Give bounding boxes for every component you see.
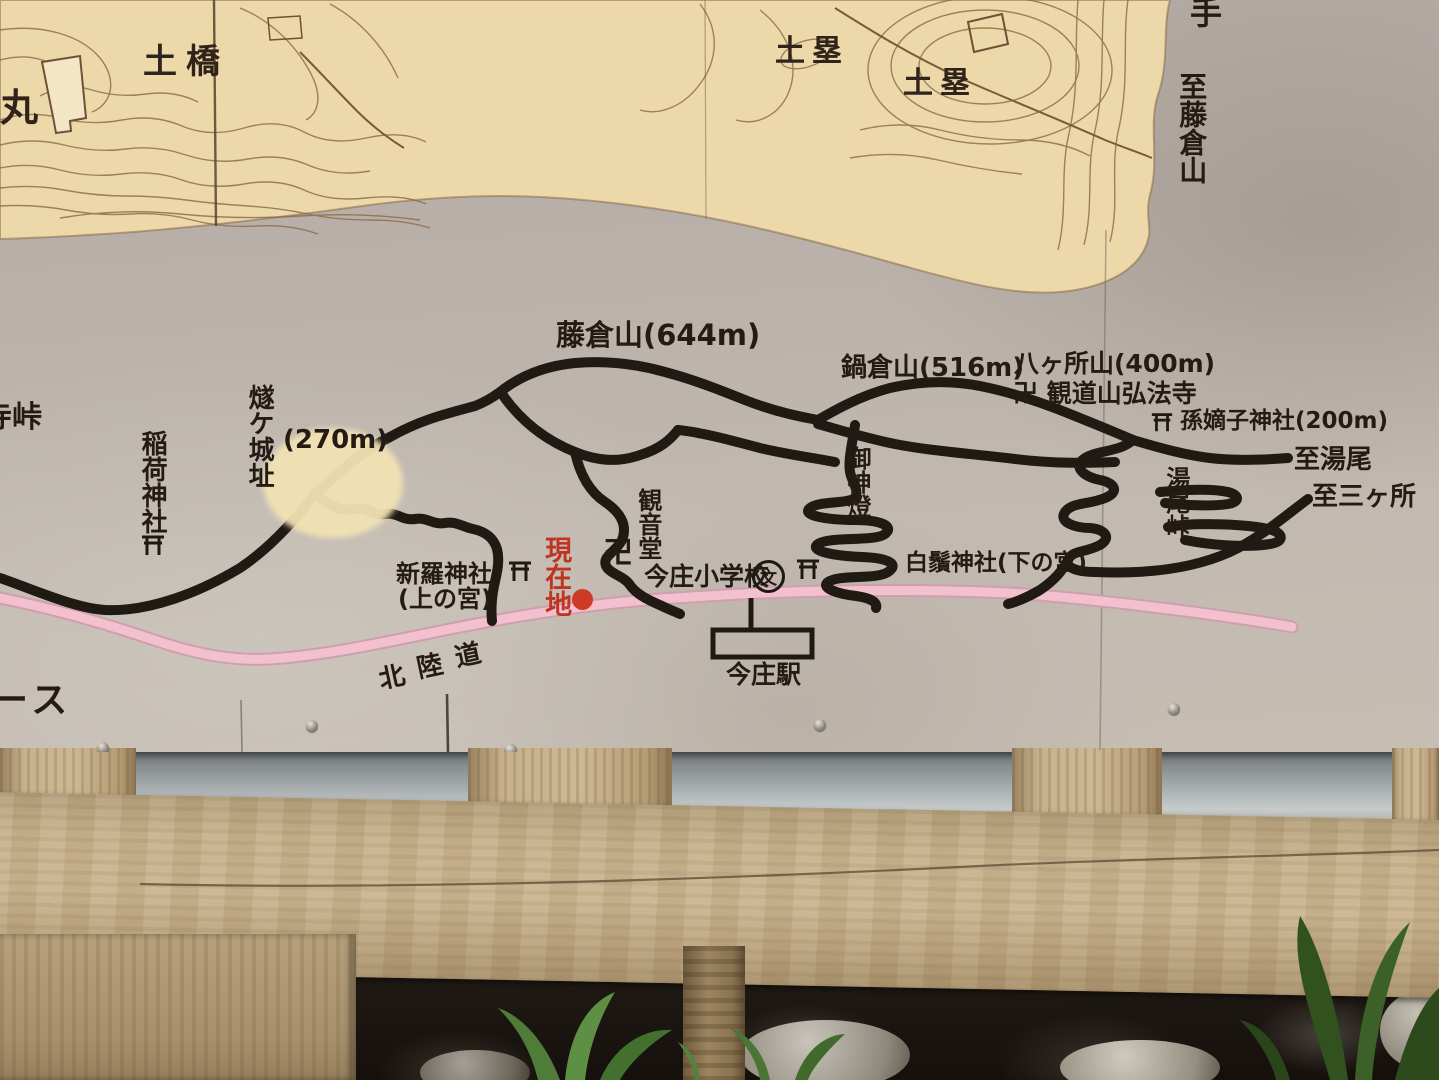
label-shinra-jinja-sub: (上の宮) [398, 587, 492, 613]
torii-icon [140, 532, 166, 558]
current-location-label: 現在地 [541, 536, 570, 617]
label-hiuchijo-alt: (270m) [283, 426, 388, 454]
label-tsuchibashi: 土橋 [143, 44, 229, 81]
label-imajo-station: 今庄駅 [726, 661, 801, 688]
torii-icon [795, 556, 821, 582]
label-fujikurayama: 藤倉山(644m) [556, 320, 760, 351]
label-nabekurayama: 鍋倉山(516m) [841, 354, 1024, 382]
label-to-sangasho: 至三ヶ所 [1312, 483, 1416, 511]
label-shirahige: 白鬚神社(下の宮) [905, 551, 1087, 576]
label-toge-partial: 寺峠 [0, 402, 42, 434]
torii-icon [1150, 410, 1174, 434]
school-symbol-icon: 文 [752, 560, 785, 593]
label-maru: 丸 [0, 88, 38, 129]
label-dorui-left: 土塁 [775, 36, 849, 68]
screw-icon [306, 720, 318, 732]
label-inari-jinja: 稲荷神社 [138, 430, 166, 534]
label-dorui-right: 土塁 [903, 68, 977, 100]
label-karamete: 手 [1190, 0, 1222, 31]
label-to-yunoo: 至湯尾 [1294, 446, 1372, 474]
screw-icon [97, 742, 109, 752]
current-location-dot-icon [572, 589, 593, 610]
screw-icon [1168, 703, 1180, 715]
screw-icon [505, 744, 517, 752]
label-hokurikudo-1: 北 [376, 662, 407, 695]
label-kobodera: 卍 観道山弘法寺 [1013, 380, 1197, 407]
label-course-partial: ース [0, 682, 72, 721]
label-kannondo: 観音堂 [634, 488, 660, 560]
label-imajo-school: 今庄小学校 [644, 563, 769, 590]
wood-post-bottom-left [0, 934, 356, 1080]
label-hiuchijo: 燧ケ城址 [245, 384, 273, 488]
manji-icon: 卍 [603, 538, 633, 570]
map-sign-panel: 土橋 丸 土塁 土塁 手 至藤倉山 藤倉山(644m) 鍋倉山(516m) 八ヶ… [0, 0, 1439, 752]
label-magojakushi: 孫嫡子神社(200m) [1180, 409, 1388, 434]
trail-map-signboard-photo: 土橋 丸 土塁 土塁 手 至藤倉山 藤倉山(644m) 鍋倉山(516m) 八ヶ… [0, 0, 1439, 1080]
label-goshinto: 御神燈 [843, 446, 869, 518]
label-hokurikudo-3: 道 [452, 640, 483, 673]
label-hokurikudo-2: 陸 [414, 651, 445, 684]
wood-leg-post [683, 946, 745, 1080]
map-drawing [0, 0, 1439, 752]
torii-icon [507, 558, 533, 584]
screw-icon [814, 719, 826, 731]
label-hakkashoyama: 八ヶ所山(400m) [1014, 350, 1215, 377]
station-icon [713, 598, 812, 657]
label-yunoo-toge: 湯尾峠 [1162, 466, 1188, 538]
label-to-fujikurayama: 至藤倉山 [1176, 72, 1206, 184]
